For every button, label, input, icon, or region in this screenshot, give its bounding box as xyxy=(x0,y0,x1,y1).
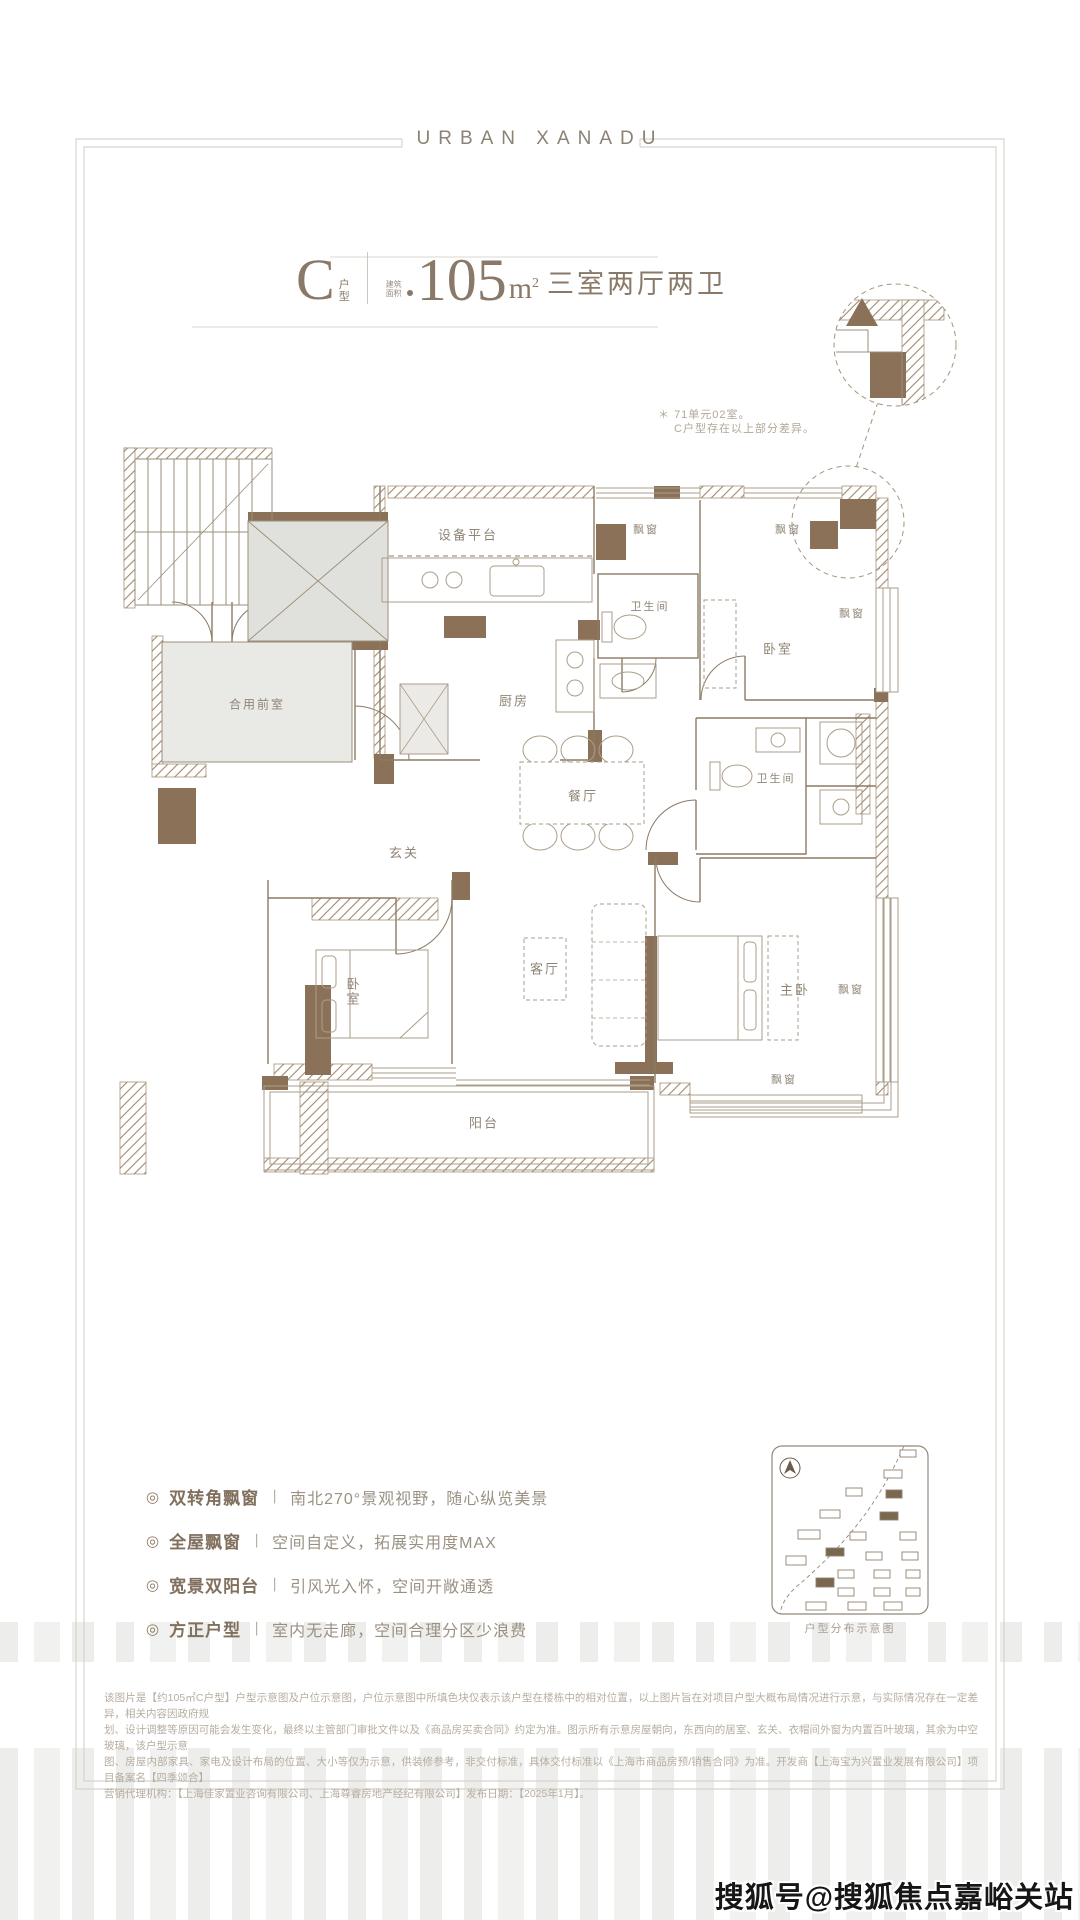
feature-desc: 空间自定义，拓展实用度MAX xyxy=(272,1529,497,1553)
room-label: 卧室 xyxy=(343,977,362,1007)
feature-desc: 引风光入怀，空间开敞通透 xyxy=(290,1573,494,1597)
feature-item: ◎ 双转角飘窗 丨 南北270°景观视野，随心纵览美景 xyxy=(146,1484,548,1509)
disclaimer-line: 营销代理机构：【上海佳家置业咨询有限公司、上海尊睿房地产经纪有限公司】发布日期：… xyxy=(104,1786,978,1802)
layout-description: 三室两厅两卫 xyxy=(547,262,727,301)
room-label: 厨房 xyxy=(499,691,529,710)
room-label: 设备平台 xyxy=(438,525,498,544)
ring-icon: ◎ xyxy=(146,1620,159,1638)
sohu-watermark: 搜狐号@搜狐焦点嘉峪关站 xyxy=(715,1874,1074,1916)
feature-name: 宽景双阳台 xyxy=(169,1572,259,1597)
area-unit: m2 xyxy=(509,274,539,304)
feature-item: ◎ 宽景双阳台 丨 引风光入怀，空间开敞通透 xyxy=(146,1572,548,1597)
room-label: 卫生间 xyxy=(631,598,670,614)
detail-callout xyxy=(792,284,956,578)
room-label: 飘窗 xyxy=(771,1071,797,1087)
elevator xyxy=(248,521,388,641)
site-inset-caption: 户型分布示意图 xyxy=(760,1620,940,1636)
disclaimer-line: 该图片是【约105㎡C户型】户型示意图及户位示意图，户位示意图中所填色块仅表示该… xyxy=(104,1690,978,1722)
feature-name: 方正户型 xyxy=(169,1616,241,1641)
feature-divider: 丨 xyxy=(267,1574,282,1595)
room-label: 客厅 xyxy=(530,959,560,978)
note-line2: C户型存在以上部分差异。 xyxy=(658,422,815,436)
ring-icon: ◎ xyxy=(146,1488,159,1506)
ring-icon: ◎ xyxy=(146,1532,159,1550)
room-label: 合用前室 xyxy=(229,696,285,713)
area-approx-dot xyxy=(407,290,413,296)
floor-plan xyxy=(120,284,956,1174)
ring-icon: ◎ xyxy=(146,1576,159,1594)
feature-desc: 南北270°景观视野，随心纵览美景 xyxy=(290,1485,548,1509)
area-value: 105 xyxy=(417,255,507,306)
site-buildings xyxy=(786,1450,920,1610)
brand-logo: URBAN XANADU xyxy=(0,128,1080,150)
room-label: 玄关 xyxy=(389,843,419,862)
room-label: 主卧 xyxy=(780,980,810,999)
note-marker: ＊ xyxy=(658,409,670,421)
feature-divider: 丨 xyxy=(249,1618,264,1639)
feature-item: ◎ 全屋飘窗 丨 空间自定义，拓展实用度MAX xyxy=(146,1528,548,1553)
unit-type-letter: C xyxy=(296,254,335,306)
solid-walls xyxy=(158,486,888,1090)
room-label: 飘窗 xyxy=(839,605,865,621)
callout-note: ＊ 71单元02室。 C户型存在以上部分差异。 xyxy=(658,408,815,436)
compass-icon xyxy=(780,1458,800,1478)
room-label: 餐厅 xyxy=(568,786,598,805)
unit-title: C 户型 建筑面积 105 m2 三室两厅两卫 xyxy=(296,252,727,306)
disclaimer: 该图片是【约105㎡C户型】户型示意图及户位示意图，户位示意图中所填色块仅表示该… xyxy=(104,1690,978,1802)
hatched-walls xyxy=(120,448,888,1174)
feature-name: 全屋飘窗 xyxy=(169,1528,241,1553)
disclaimer-line: 划、设计调整等原因可能会发生变化，最终以主管部门审批文件以及《商品房买卖合同》约… xyxy=(104,1722,978,1754)
room-label: 飘窗 xyxy=(838,981,864,997)
room-label: 阳台 xyxy=(469,1113,499,1132)
room-label: 卧室 xyxy=(763,639,793,658)
stairwell xyxy=(135,459,272,605)
room-label: 飘窗 xyxy=(633,521,659,537)
title-divider xyxy=(367,252,368,304)
windows xyxy=(264,488,898,1170)
area-note: 建筑面积 xyxy=(386,280,404,298)
unit-type-label: 户型 xyxy=(339,279,353,303)
room-label: 卫生间 xyxy=(757,770,796,786)
site-plan-inset xyxy=(772,1446,928,1614)
feature-list: ◎ 双转角飘窗 丨 南北270°景观视野，随心纵览美景 ◎ 全屋飘窗 丨 空间自… xyxy=(146,1484,548,1641)
feature-item: ◎ 方正户型 丨 室内无走廊，空间合理分区少浪费 xyxy=(146,1616,548,1641)
note-line1: 71单元02室。 xyxy=(674,409,750,421)
feature-desc: 室内无走廊，空间合理分区少浪费 xyxy=(272,1617,527,1641)
feature-divider: 丨 xyxy=(249,1530,264,1551)
room-label: 飘窗 xyxy=(775,521,801,537)
disclaimer-line: 图、房屋内部家具、家电及设计布局的位置、大小等仅为示意，供装修参考，非交付标准，… xyxy=(104,1754,978,1786)
feature-name: 双转角飘窗 xyxy=(169,1484,259,1509)
feature-divider: 丨 xyxy=(267,1486,282,1507)
